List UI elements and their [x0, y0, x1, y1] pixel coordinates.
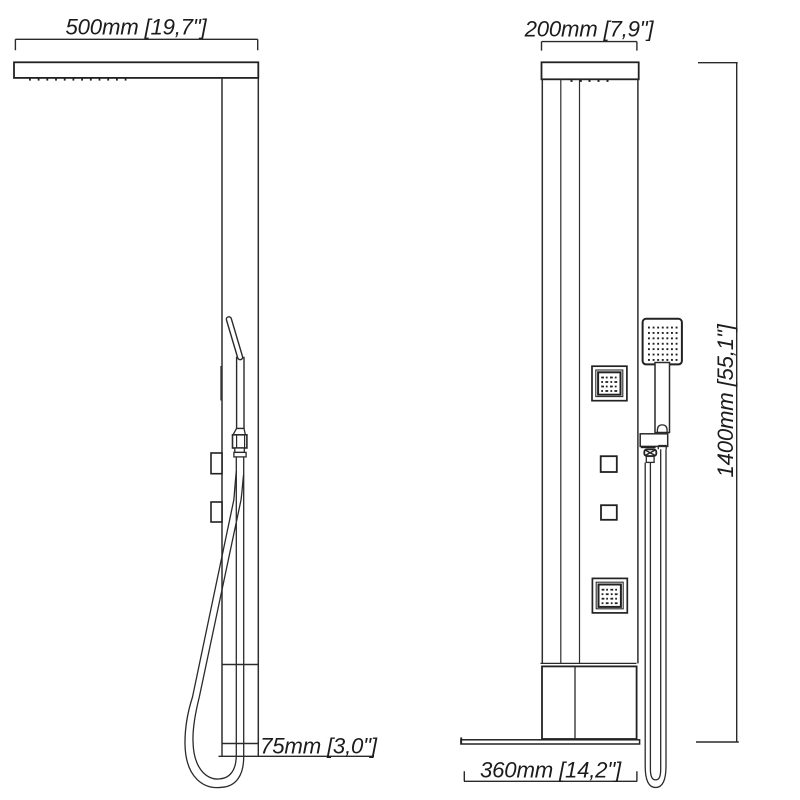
svg-text:200mm [7,9"]: 200mm [7,9"]: [524, 17, 655, 42]
svg-text:360mm [14,2"]: 360mm [14,2"]: [480, 758, 622, 783]
svg-text:1400mm [55,1"]: 1400mm [55,1"]: [713, 323, 738, 477]
svg-text:75mm [3,0"]: 75mm [3,0"]: [260, 734, 378, 759]
svg-text:500mm [19,7"]: 500mm [19,7"]: [66, 15, 208, 40]
